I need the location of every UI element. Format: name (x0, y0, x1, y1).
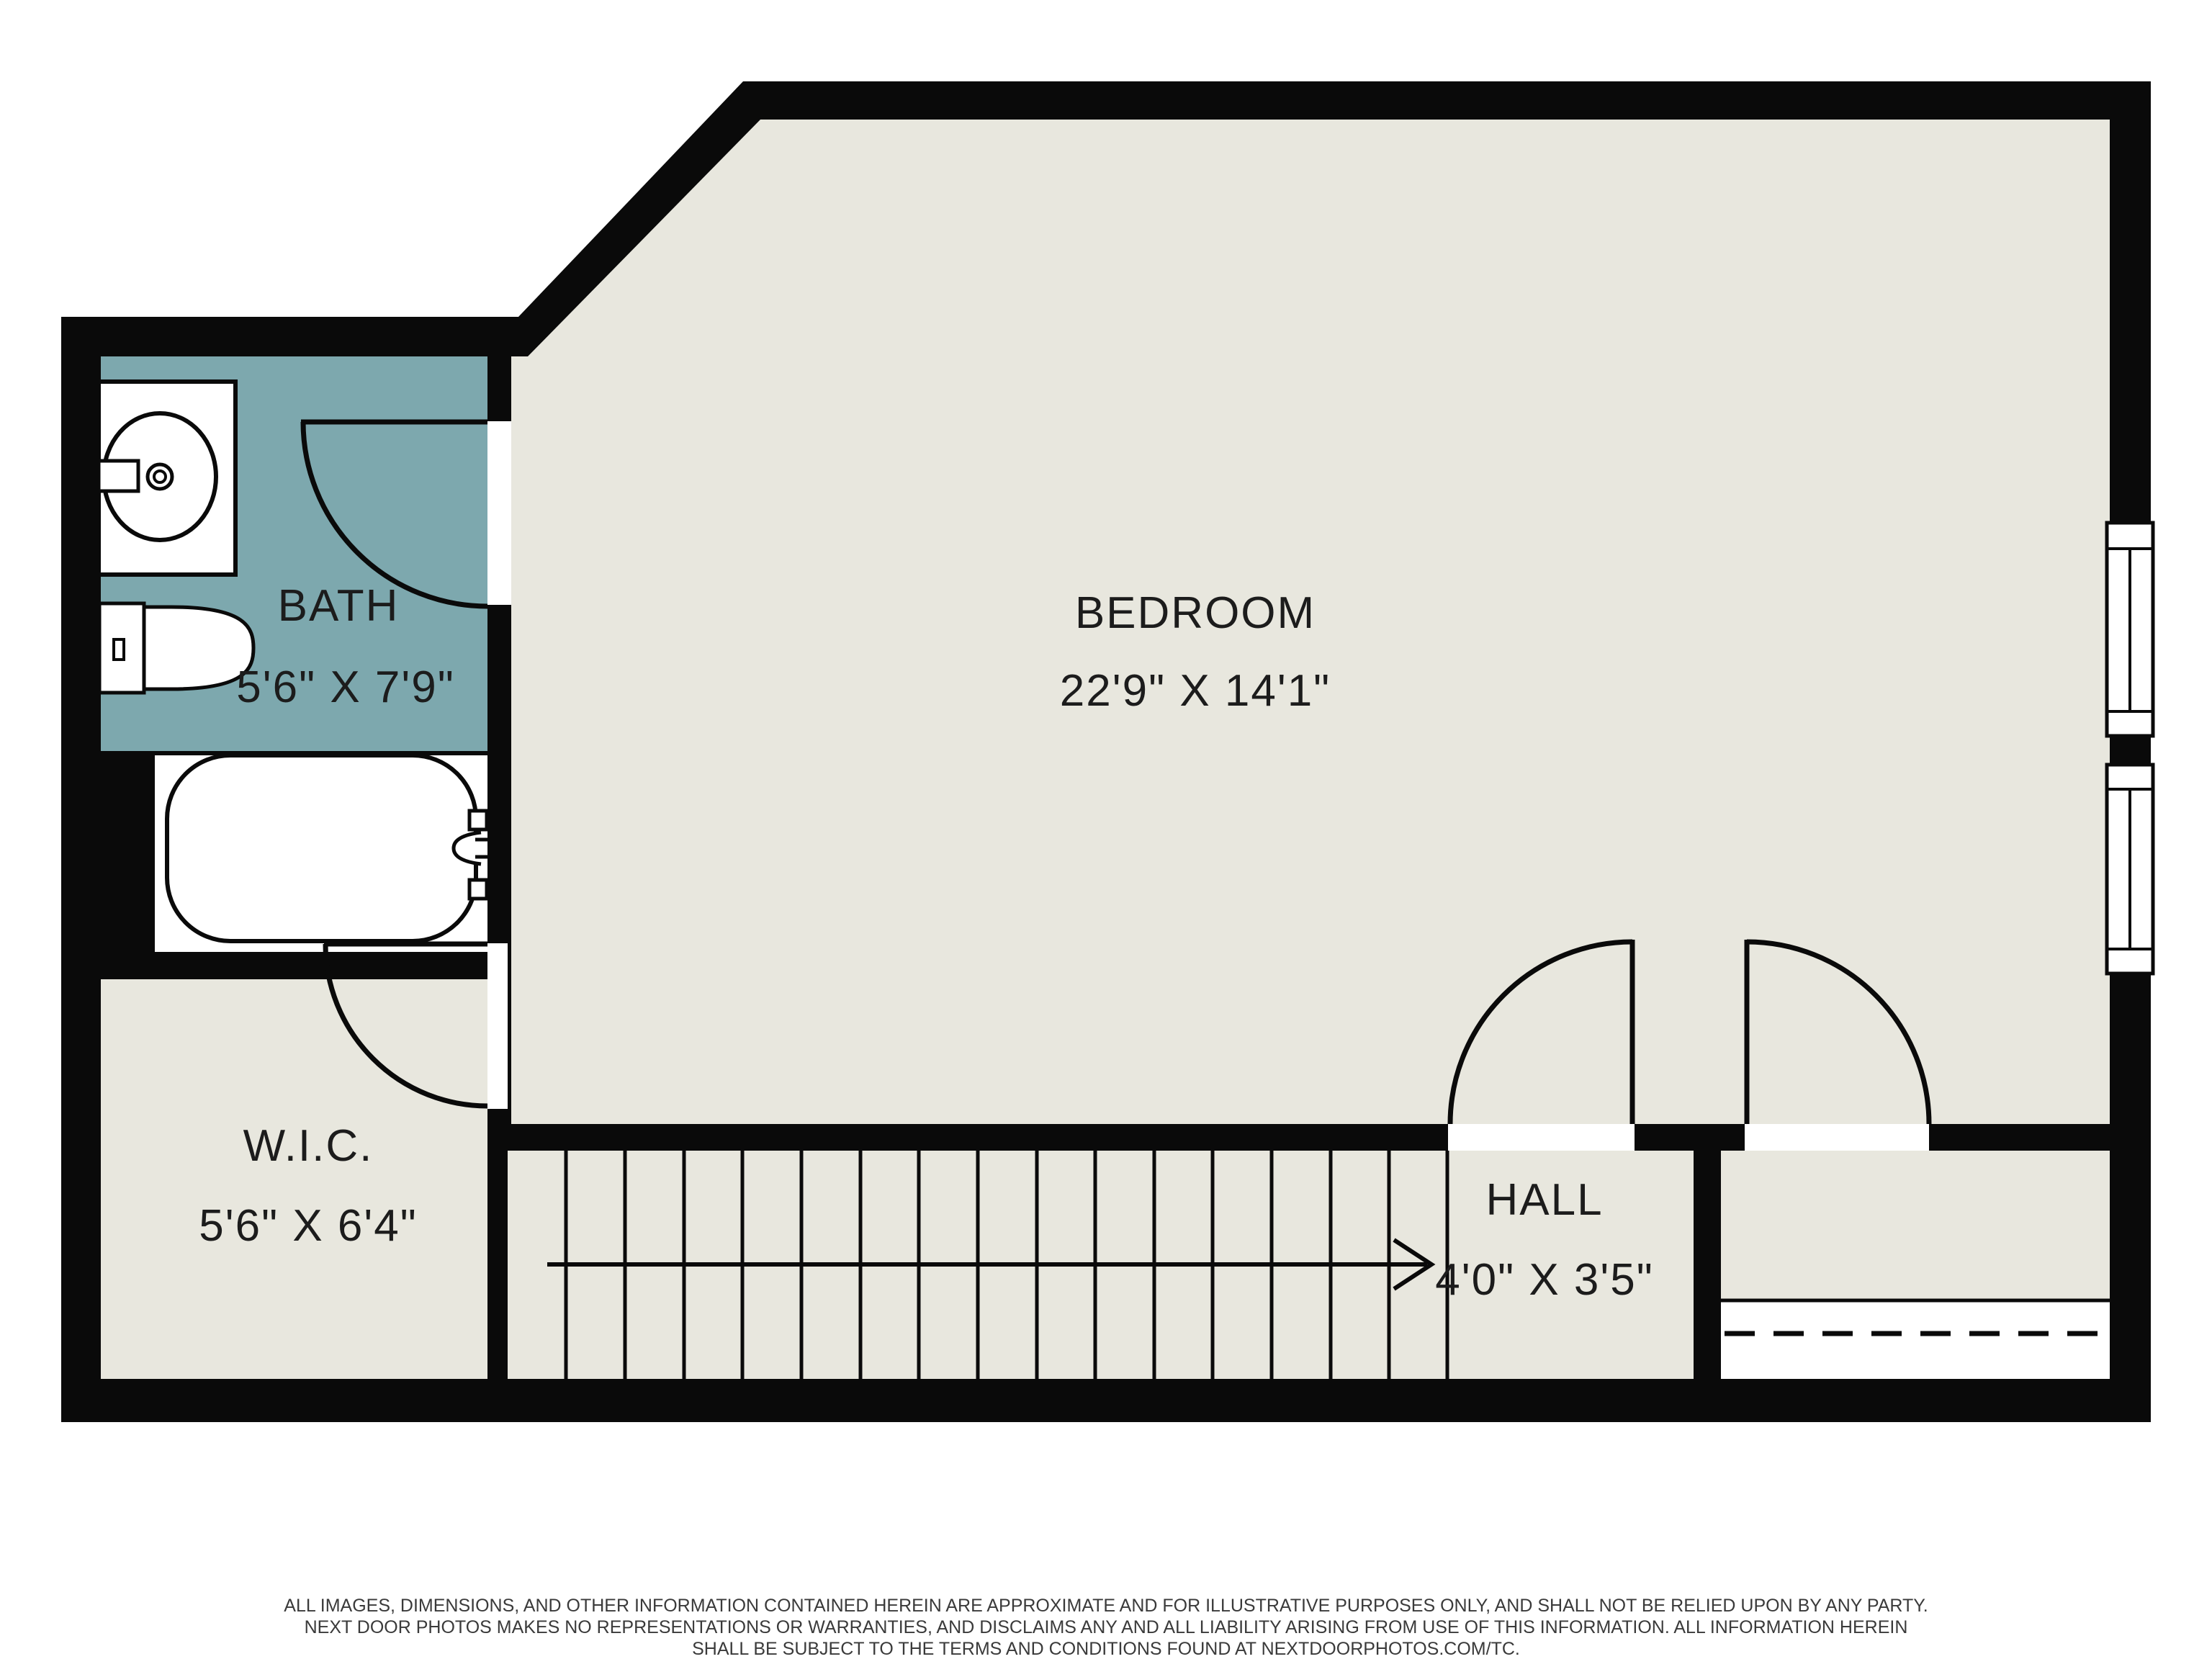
floor-plan-page: BATH 5'6" X 7'9" BEDROOM 22'9" X 14'1" W… (0, 0, 2212, 1659)
hall-dims: 4'0" X 3'5" (1435, 1255, 1653, 1305)
bath-door-opening (487, 421, 511, 605)
bath-label: BATH (278, 581, 400, 631)
disclaimer-line-2: NEXT DOOR PHOTOS MAKES NO REPRESENTATION… (305, 1617, 1908, 1637)
closet-room-floor (1721, 1151, 2110, 1300)
bedroom-right-door-opening (1745, 1124, 1929, 1151)
window-icon-upper (2107, 523, 2153, 736)
bath-dims: 5'6" X 7'9" (236, 662, 454, 712)
wic-door-opening (487, 943, 508, 1109)
bedroom-dims: 22'9" X 14'1" (1060, 666, 1331, 716)
window-icon-lower (2107, 765, 2153, 974)
hall-closet-wall-stub (1694, 1151, 1721, 1379)
bedroom-label: BEDROOM (1075, 588, 1316, 638)
bathtub-icon (167, 755, 498, 941)
wic-floor (101, 979, 487, 1379)
sink-vanity-icon (99, 382, 235, 575)
toilet-icon (99, 603, 253, 693)
hall-label: HALL (1485, 1175, 1603, 1225)
disclaimer-line-3: SHALL BE SUBJECT TO THE TERMS AND CONDIT… (692, 1639, 1520, 1659)
wic-dims: 5'6" X 6'4" (199, 1201, 417, 1251)
disclaimer-line-1: ALL IMAGES, DIMENSIONS, AND OTHER INFORM… (284, 1596, 1928, 1616)
wic-label: W.I.C. (243, 1121, 374, 1171)
closet-area (1721, 1300, 2110, 1379)
bedroom-left-door-opening (1448, 1124, 1635, 1151)
floor-plan-canvas: BATH 5'6" X 7'9" BEDROOM 22'9" X 14'1" W… (0, 0, 2212, 1659)
